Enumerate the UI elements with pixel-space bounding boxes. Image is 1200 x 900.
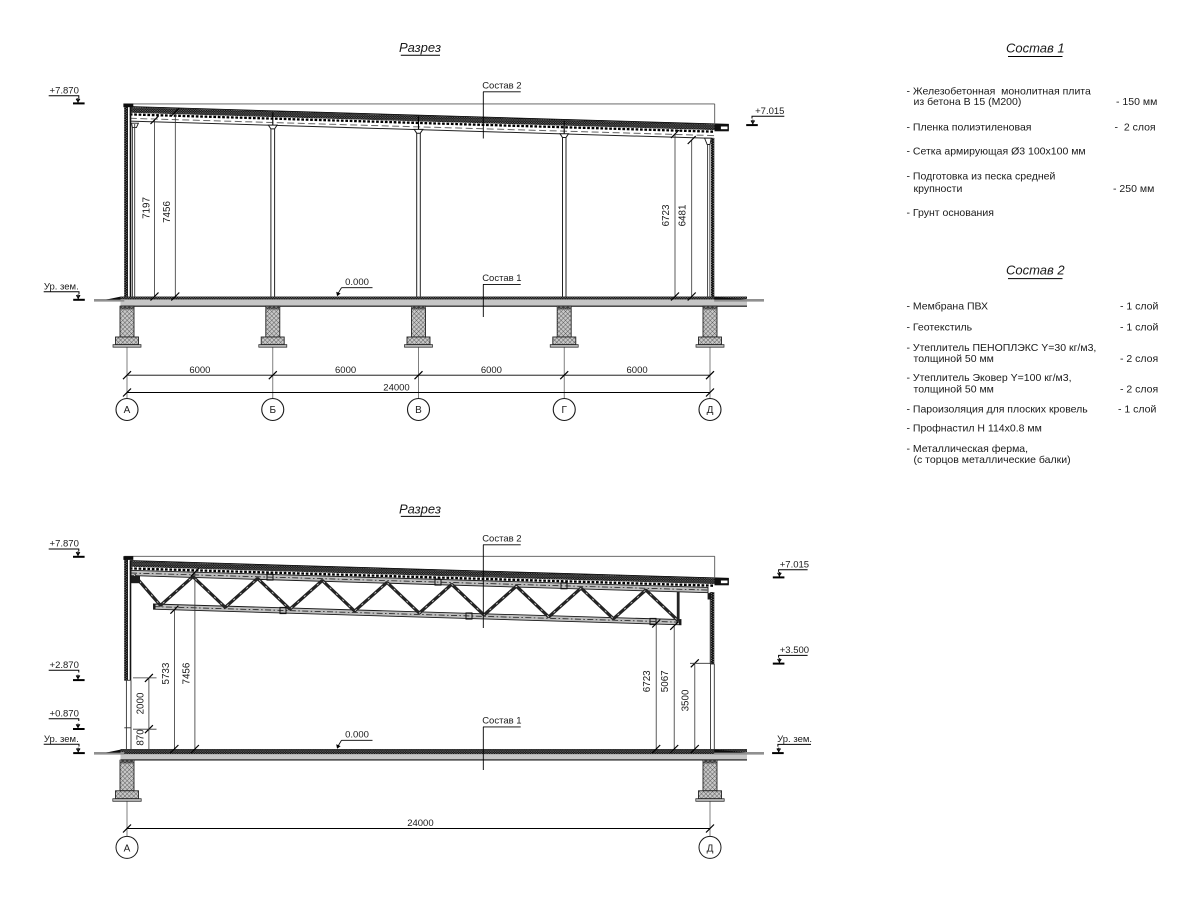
svg-text:0.000: 0.000 bbox=[345, 729, 369, 740]
svg-text:6723: 6723 bbox=[661, 204, 672, 226]
svg-text:А: А bbox=[124, 843, 131, 854]
svg-text:+7.015: +7.015 bbox=[755, 106, 784, 117]
svg-text:6481: 6481 bbox=[678, 205, 689, 227]
svg-text:В: В bbox=[415, 405, 422, 416]
svg-text:- 250 мм: - 250 мм bbox=[1113, 183, 1154, 195]
svg-text:24000: 24000 bbox=[407, 818, 433, 829]
svg-text:- 1 слой: - 1 слой bbox=[1118, 404, 1157, 416]
svg-text:5067: 5067 bbox=[660, 670, 671, 692]
svg-text:- Профнастил Н 114х0.8 мм: - Профнастил Н 114х0.8 мм bbox=[907, 423, 1042, 435]
svg-text:Д: Д bbox=[707, 405, 714, 416]
svg-text:- Пароизоляция для плоских кро: - Пароизоляция для плоских кровель bbox=[907, 404, 1089, 416]
svg-text:- 150 мм: - 150 мм bbox=[1116, 96, 1157, 108]
svg-text:3500: 3500 bbox=[680, 689, 691, 711]
svg-text:7456: 7456 bbox=[162, 201, 173, 223]
svg-text:+7.870: +7.870 bbox=[50, 539, 79, 550]
svg-text:- Мембрана ПВХ: - Мембрана ПВХ bbox=[907, 301, 989, 313]
svg-text:6000: 6000 bbox=[481, 365, 502, 376]
svg-text:- Металлическая ферма,: - Металлическая ферма, bbox=[907, 443, 1029, 455]
svg-text:из бетона В 15 (М200): из бетона В 15 (М200) bbox=[914, 96, 1022, 108]
svg-text:- Геотекстиль: - Геотекстиль bbox=[907, 322, 973, 334]
svg-text:6000: 6000 bbox=[189, 365, 210, 376]
svg-text:Д: Д bbox=[707, 843, 714, 854]
svg-text:- 2 слоя: - 2 слоя bbox=[1115, 122, 1156, 134]
svg-text:7197: 7197 bbox=[141, 197, 152, 219]
svg-text:+2.870: +2.870 bbox=[50, 660, 79, 671]
svg-text:5733: 5733 bbox=[161, 662, 172, 684]
svg-text:6723: 6723 bbox=[642, 670, 653, 692]
svg-text:- Подготовка из песка средней: - Подготовка из песка средней bbox=[907, 171, 1056, 183]
svg-text:Состав 2: Состав 2 bbox=[482, 533, 521, 544]
svg-text:+7.015: +7.015 bbox=[780, 559, 809, 570]
svg-text:- Грунт основания: - Грунт основания bbox=[907, 207, 994, 219]
svg-text:- 2 слоя: - 2 слоя bbox=[1120, 353, 1158, 365]
svg-text:толщиной 50 мм: толщиной 50 мм bbox=[914, 353, 994, 365]
svg-text:толщиной 50 мм: толщиной 50 мм bbox=[914, 383, 994, 395]
svg-text:2000: 2000 bbox=[136, 692, 147, 714]
svg-text:Ур. зем.: Ур. зем. bbox=[44, 281, 79, 292]
svg-text:Состав 1: Состав 1 bbox=[1006, 40, 1065, 55]
svg-text:- 1 слой: - 1 слой bbox=[1120, 301, 1159, 313]
svg-text:- Утеплитель Эковер Y=100 кг/м: - Утеплитель Эковер Y=100 кг/м3, bbox=[907, 372, 1072, 384]
svg-text:Б: Б bbox=[270, 405, 277, 416]
svg-text:- Сетка армирующая Ø3 100х100: - Сетка армирующая Ø3 100х100 мм bbox=[907, 146, 1086, 158]
svg-text:Ур. зем.: Ур. зем. bbox=[777, 734, 812, 745]
svg-text:А: А bbox=[124, 405, 131, 416]
svg-text:Состав 2: Состав 2 bbox=[482, 80, 521, 91]
svg-text:крупности: крупности bbox=[914, 183, 963, 195]
svg-text:- Пленка полиэтиленовая: - Пленка полиэтиленовая bbox=[907, 122, 1032, 134]
svg-text:Ур. зем.: Ур. зем. bbox=[44, 734, 79, 745]
svg-text:Разрез: Разрез bbox=[399, 501, 441, 516]
svg-text:870: 870 bbox=[136, 729, 147, 746]
svg-text:+3.500: +3.500 bbox=[780, 645, 809, 656]
svg-text:+0.870: +0.870 bbox=[50, 708, 79, 719]
svg-text:Состав 1: Состав 1 bbox=[482, 273, 521, 284]
svg-text:Состав 2: Состав 2 bbox=[1006, 262, 1065, 277]
svg-text:- 1 слой: - 1 слой bbox=[1120, 322, 1159, 334]
svg-text:- 2 слоя: - 2 слоя bbox=[1120, 383, 1158, 395]
svg-text:(с торцов металлические балки): (с торцов металлические балки) bbox=[914, 454, 1071, 466]
svg-text:Разрез: Разрез bbox=[399, 40, 441, 55]
svg-text:Г: Г bbox=[561, 405, 567, 416]
svg-text:+7.870: +7.870 bbox=[50, 85, 79, 96]
svg-text:0.000: 0.000 bbox=[345, 277, 369, 288]
svg-text:6000: 6000 bbox=[627, 365, 648, 376]
svg-text:Состав 1: Состав 1 bbox=[482, 715, 521, 726]
svg-text:24000: 24000 bbox=[383, 382, 409, 393]
svg-text:6000: 6000 bbox=[335, 365, 356, 376]
svg-text:7456: 7456 bbox=[182, 662, 193, 684]
